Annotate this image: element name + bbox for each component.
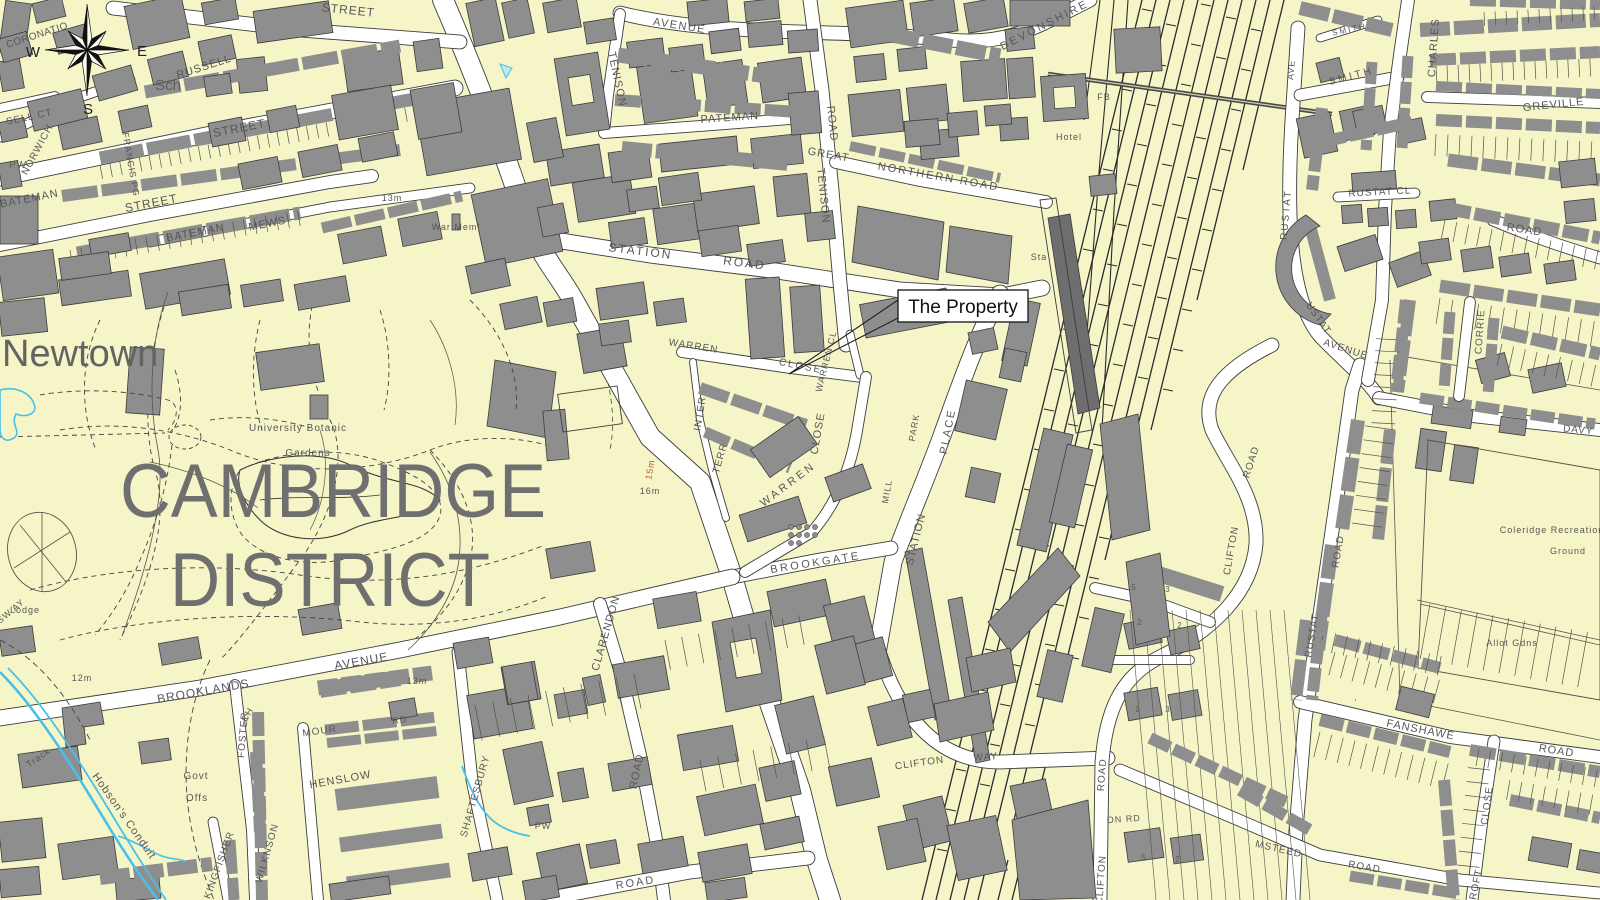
svg-text:Coleridge Recreation: Coleridge Recreation [1500,525,1600,535]
svg-text:2: 2 [1177,621,1182,630]
svg-text:Govt: Govt [183,771,208,782]
svg-text:War Meml: War Meml [432,222,481,232]
svg-text:AVE: AVE [1285,59,1297,80]
svg-text:Sta: Sta [1031,252,1048,262]
svg-text:2: 2 [1137,618,1142,627]
svg-text:Newtown: Newtown [2,333,158,375]
svg-text:W: W [26,44,41,61]
svg-text:13m: 13m [382,193,403,203]
svg-text:Offs: Offs [186,793,208,804]
svg-text:WAY: WAY [973,751,998,764]
svg-text:CAMBRIDGE: CAMBRIDGE [120,449,546,534]
svg-text:University Botanic: University Botanic [249,423,347,434]
svg-text:S: S [83,101,93,118]
svg-text:13m: 13m [407,676,428,686]
svg-text:3: 3 [1165,705,1170,714]
svg-text:ROAD: ROAD [1096,758,1109,792]
svg-text:E: E [137,43,147,60]
svg-text:3: 3 [1165,585,1170,594]
svg-text:Ground: Ground [1550,546,1586,556]
svg-text:Sch: Sch [155,77,181,94]
svg-text:FB: FB [1097,92,1111,102]
svg-text:PW: PW [535,821,552,831]
svg-text:DISTRICT: DISTRICT [170,538,490,623]
svg-text:Gardens: Gardens [285,448,330,459]
svg-text:16m: 16m [640,486,661,496]
svg-text:12m: 12m [72,673,93,683]
svg-text:RD: RD [391,714,407,726]
svg-text:2: 2 [1135,705,1140,714]
svg-text:5: 5 [1141,853,1146,862]
svg-text:The Property: The Property [908,297,1018,318]
svg-text:PW: PW [9,160,27,171]
svg-text:5: 5 [1131,583,1136,592]
svg-text:2: 2 [1175,855,1180,864]
svg-text:Allot Gdns: Allot Gdns [1486,638,1538,648]
svg-text:Hotel: Hotel [1056,132,1082,142]
